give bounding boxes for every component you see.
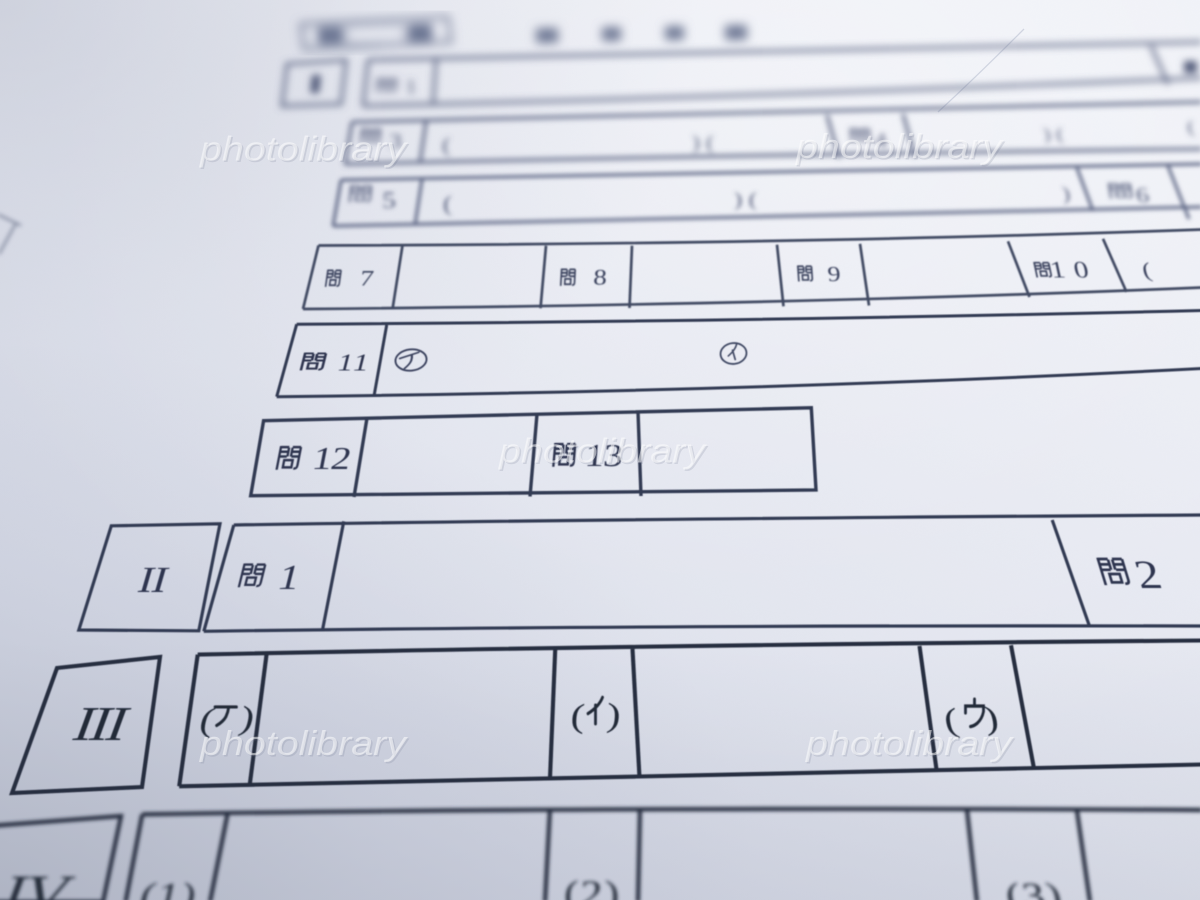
svg-text:): )	[605, 697, 622, 734]
svg-text:(: (	[442, 134, 451, 157]
svg-text:(: (	[569, 698, 586, 735]
svg-text:10: 10	[1047, 256, 1100, 283]
svg-text:photolibrary: photolibrary	[795, 128, 1004, 166]
svg-text:11: 11	[334, 350, 372, 377]
svg-text:) (: ) (	[1042, 125, 1065, 145]
svg-text:photolibrary: photolibrary	[199, 131, 408, 169]
svg-text:) (: ) (	[692, 131, 714, 153]
svg-text:photolibrary: photolibrary	[805, 725, 1014, 763]
svg-text:8: 8	[593, 266, 608, 290]
svg-text:) (: ) (	[734, 188, 757, 210]
svg-text:(1): (1)	[136, 875, 202, 900]
svg-text:9: 9	[827, 263, 842, 286]
svg-text:12: 12	[310, 441, 354, 477]
svg-text:photolibrary: photolibrary	[199, 725, 408, 763]
svg-text:photolibrary: photolibrary	[498, 433, 707, 471]
svg-text:5: 5	[382, 187, 396, 213]
svg-text:(: (	[443, 192, 452, 216]
svg-text:(3): (3)	[1002, 875, 1066, 900]
svg-text:1: 1	[405, 75, 417, 97]
svg-text:(2): (2)	[564, 873, 621, 900]
